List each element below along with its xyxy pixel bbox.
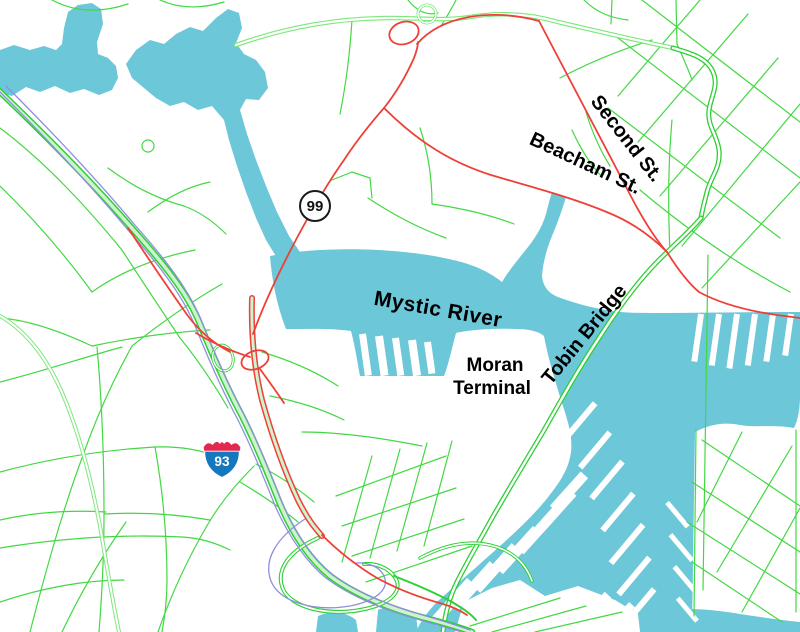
interstate-93-number: 93 [214, 454, 230, 469]
label-terminal: Terminal [453, 378, 531, 400]
interstate-93-shield: 93 [201, 437, 243, 479]
map-canvas [0, 0, 800, 632]
route-99-number: 99 [307, 198, 324, 215]
route-99-shield: 99 [299, 190, 331, 222]
street-map: 99 93 Second St. Beacham St. Mystic Rive… [0, 0, 800, 632]
interstate-93-shield-graphic: 93 [201, 437, 243, 479]
water-layer [0, 3, 800, 632]
label-moran: Moran [467, 355, 524, 377]
interstate-shield-crown [203, 441, 241, 452]
